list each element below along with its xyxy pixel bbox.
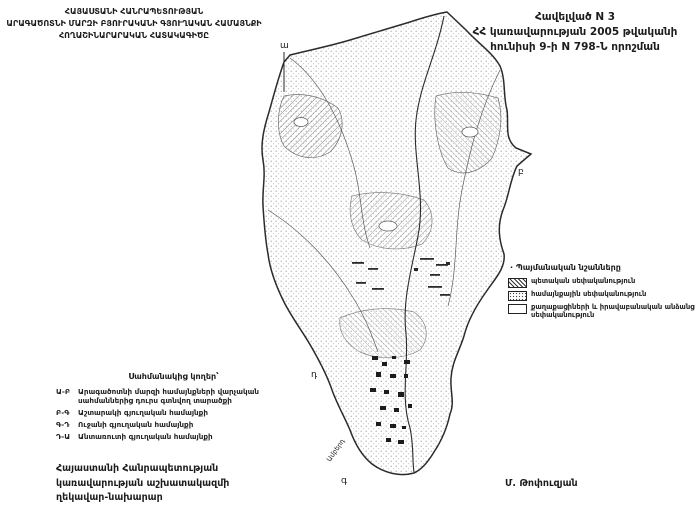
signatory-office: Հայաստանի Հանրապետության կառավարության ա…: [56, 462, 256, 506]
document-title: ՀԱՅԱՍՏԱՆԻ ՀԱՆՐԱՊԵՏՈՒԹՅԱՆ ԱՐԱԳԱԾՈՏՆԻ ՄԱՐԶ…: [0, 6, 268, 42]
signatory-name: Մ. Թոփուզյան: [505, 478, 578, 489]
adjacent-borders-block: Սահմանակից կողեր՝ Ա-Բ Արագածոտնի մարզի հ…: [56, 372, 291, 444]
border-segment-label: Աշտարակի գյուղական համայնքի: [78, 408, 291, 417]
corner-label-g: գ: [341, 476, 347, 486]
empty-swatch-icon: [508, 304, 527, 314]
hatched-swatch-icon: [508, 278, 527, 288]
document-title-line3: ՀՈՂԱՇԻՆԱՐԱՐԱԿԱՆ ՀԱՏԱԿԱԳԻԾԸ: [0, 30, 268, 42]
annex-reference: Հավելված N 3 ՀՀ կառավարության 2005 թվակա…: [452, 10, 698, 55]
legend-item-community: համայնքային սեփականություն: [508, 290, 698, 301]
document-title-line1: ՀԱՅԱՍՏԱՆԻ ՀԱՆՐԱՊԵՏՈՒԹՅԱՆ: [0, 6, 268, 18]
corner-label-b: բ: [518, 167, 524, 177]
map-legend: · Պայմանական նշանները պետական սեփականութ…: [508, 263, 698, 321]
border-row: Գ-Դ Ուջանի գյուղական համայնքի: [56, 420, 291, 429]
signatory-office-line3: ղեկավար-նախարար: [56, 491, 256, 506]
borders-heading: Սահմանակից կողեր՝: [56, 372, 291, 381]
signatory-office-line1: Հայաստանի Հանրապետության: [56, 462, 256, 477]
corner-label-a: ա: [280, 41, 289, 51]
annex-line3: հունիսի 9-ի N 798-Ն որոշման: [452, 40, 698, 55]
border-segment-code: Դ-Ա: [56, 432, 78, 441]
legend-item-state: պետական սեփականություն: [508, 277, 698, 288]
clearing-2: [462, 127, 478, 137]
annex-line1: Հավելված N 3: [452, 10, 698, 25]
legend-heading: · Պայմանական նշանները: [510, 263, 698, 272]
river-label: Ամբերդ: [325, 437, 347, 463]
border-segment-label: Ուջանի գյուղական համայնքի: [78, 420, 291, 429]
border-row: Ա-Բ Արագածոտնի մարզի համայնքների վարչակա…: [56, 387, 291, 405]
legend-item-private: քաղաքացիների և իրավաբանական անձանց սեփակ…: [508, 303, 698, 319]
border-segment-code: Ա-Բ: [56, 387, 78, 405]
annex-line2: ՀՀ կառավարության 2005 թվականի: [452, 25, 698, 40]
border-row: Բ-Գ Աշտարակի գյուղական համայնքի: [56, 408, 291, 417]
clearing-1: [294, 118, 308, 127]
clearing-3: [379, 221, 397, 231]
legend-bullet: ·: [510, 263, 513, 272]
border-segment-label: Անտառուտի գյուղական համայնքի: [78, 432, 291, 441]
signatory-office-line2: կառավարության աշխատակազմի: [56, 477, 256, 492]
corner-label-d: դ: [311, 370, 317, 380]
legend-heading-text: Պայմանական նշանները: [516, 263, 621, 272]
document-title-line2: ԱՐԱԳԱԾՈՏՆԻ ՄԱՐԶԻ ԲՅՈՒՐԱԿԱՆԻ ԳՅՈՒՂԱԿԱՆ ՀԱ…: [0, 18, 268, 30]
dotted-swatch-icon: [508, 291, 527, 301]
document-page: ա բ գ դ Ամբերդ ՀԱՅԱՍՏԱՆԻ ՀԱՆՐԱՊԵՏՈՒԹՅԱՆ …: [0, 0, 700, 506]
border-row: Դ-Ա Անտառուտի գյուղական համայնքի: [56, 432, 291, 441]
legend-item-label: համայնքային սեփականություն: [531, 290, 646, 298]
legend-item-label: պետական սեփականություն: [531, 277, 635, 285]
border-segment-label: Արագածոտնի մարզի համայնքների վարչական սա…: [78, 387, 291, 405]
border-segment-code: Գ-Դ: [56, 420, 78, 429]
state-land-patch-topleft: [278, 95, 342, 158]
legend-item-label: քաղաքացիների և իրավաբանական անձանց սեփակ…: [531, 303, 698, 319]
border-segment-code: Բ-Գ: [56, 408, 78, 417]
